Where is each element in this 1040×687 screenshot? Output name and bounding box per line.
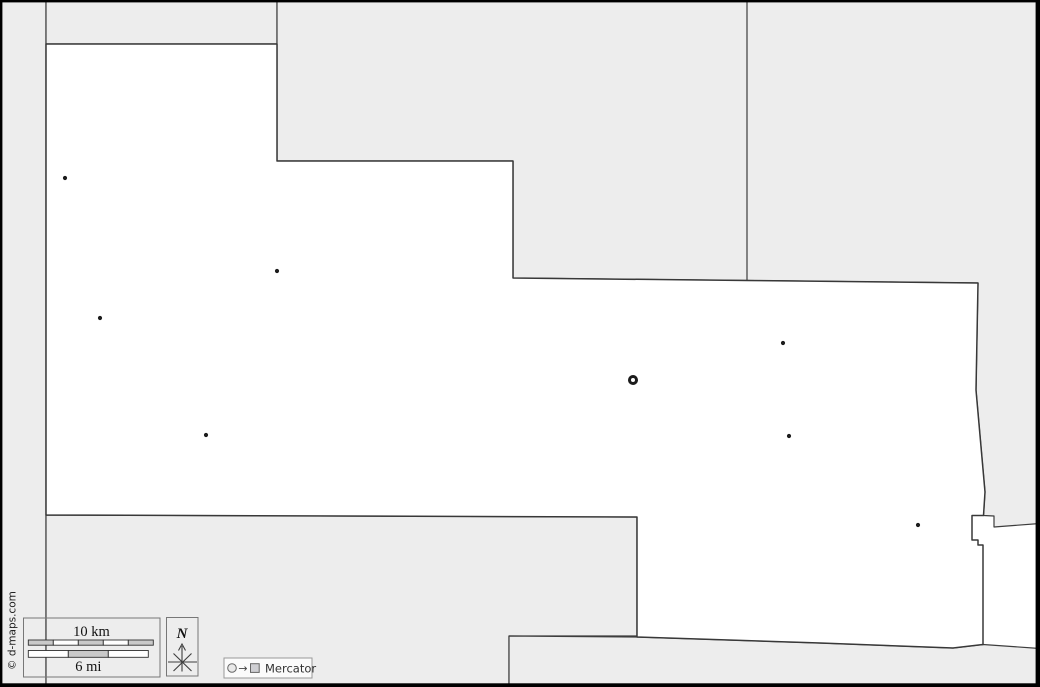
town-dot: [63, 176, 67, 180]
scale-km-bar: [28, 640, 153, 645]
town-dot: [98, 316, 102, 320]
county-map: 10 km 6 mi N: [0, 0, 1040, 687]
scale-mi-bar: [28, 651, 148, 658]
globe-circle-icon: [228, 664, 237, 673]
scale-mi-label: 6 mi: [75, 659, 101, 675]
town-dot: [787, 434, 791, 438]
flat-map-square-icon: [251, 664, 260, 673]
north-label: N: [176, 626, 189, 642]
county-seat-marker: [630, 377, 637, 384]
projection-arrow-icon: →: [238, 662, 247, 675]
map-page: 10 km 6 mi N: [0, 0, 1040, 687]
neighbor-region-northwest: [46, 0, 277, 44]
copyright-label: © d-maps.com: [7, 591, 19, 670]
town-dot: [204, 433, 208, 437]
town-dot: [916, 523, 920, 527]
neighbor-region-west: [0, 0, 46, 687]
projection-label: Mercator: [265, 662, 316, 676]
town-dot: [781, 341, 785, 345]
projection-box: → Mercator: [224, 658, 316, 678]
town-dot: [275, 269, 279, 273]
scale-km-label: 10 km: [73, 624, 110, 640]
